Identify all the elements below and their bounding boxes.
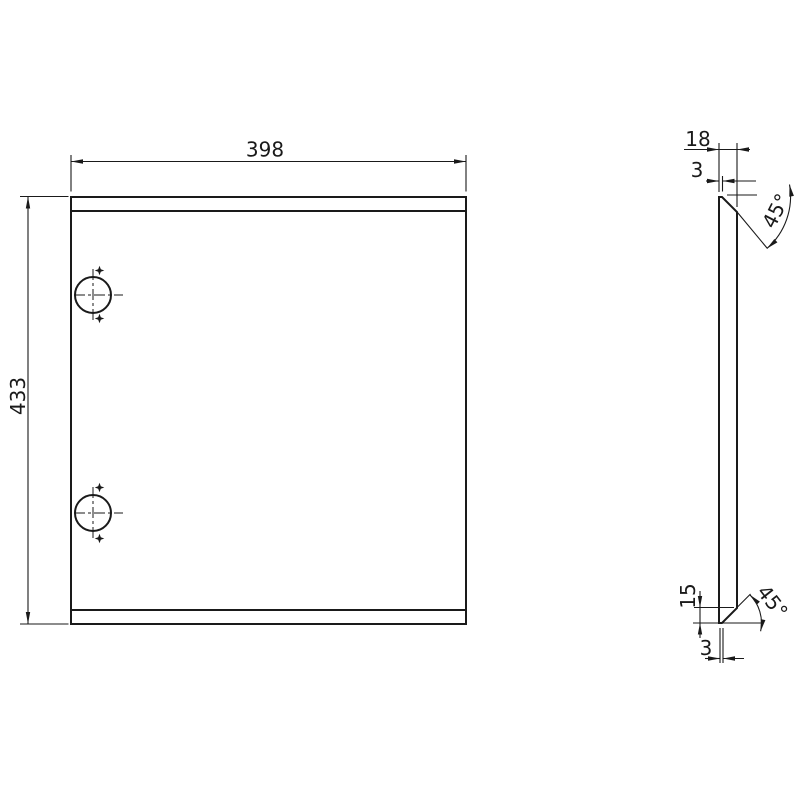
arrowhead [737, 147, 749, 151]
dim-side-top-flat: 3 [691, 158, 756, 192]
arrowhead [26, 612, 30, 624]
technical-drawing-page: 398 433 18 [0, 0, 800, 800]
dim-side-top-flat-label: 3 [691, 158, 704, 182]
arrowhead [789, 185, 794, 197]
front-view: 398 433 [6, 138, 466, 625]
dim-side-bottom-angle: 45° [737, 580, 793, 631]
dim-front-width: 398 [71, 138, 466, 192]
screw-point-mark [95, 314, 105, 324]
arrowhead [767, 239, 778, 249]
arrowhead [723, 656, 735, 660]
arrowhead [26, 197, 30, 209]
dim-front-width-label: 398 [246, 138, 284, 162]
chamfer-extension-line [737, 594, 751, 608]
dim-side-top-angle-label: 45° [757, 190, 794, 232]
dim-side-bottom-flat: 3 [700, 628, 744, 663]
dim-side-thickness-label: 18 [685, 127, 710, 151]
side-view: 18 3 45° 15 [676, 127, 795, 663]
technical-drawing: 398 433 18 [0, 0, 800, 800]
dim-side-bottom-angle-label: 45° [752, 580, 793, 623]
dim-side-bottom-height-label: 15 [676, 583, 700, 608]
dim-front-height-label: 433 [6, 377, 30, 415]
arrowhead [454, 159, 466, 163]
screw-point-mark [95, 266, 105, 276]
arrowhead [723, 179, 735, 183]
dim-side-bottom-flat-label: 3 [700, 636, 713, 660]
side-profile-outline [719, 197, 737, 623]
arrowhead [698, 623, 702, 635]
screw-point-mark [95, 483, 105, 493]
arrowhead [71, 159, 83, 163]
arrowhead [707, 179, 719, 183]
arrowhead [761, 619, 766, 631]
dim-front-height: 433 [6, 197, 69, 625]
screw-point-mark [95, 534, 105, 544]
panel-outline [71, 197, 466, 624]
